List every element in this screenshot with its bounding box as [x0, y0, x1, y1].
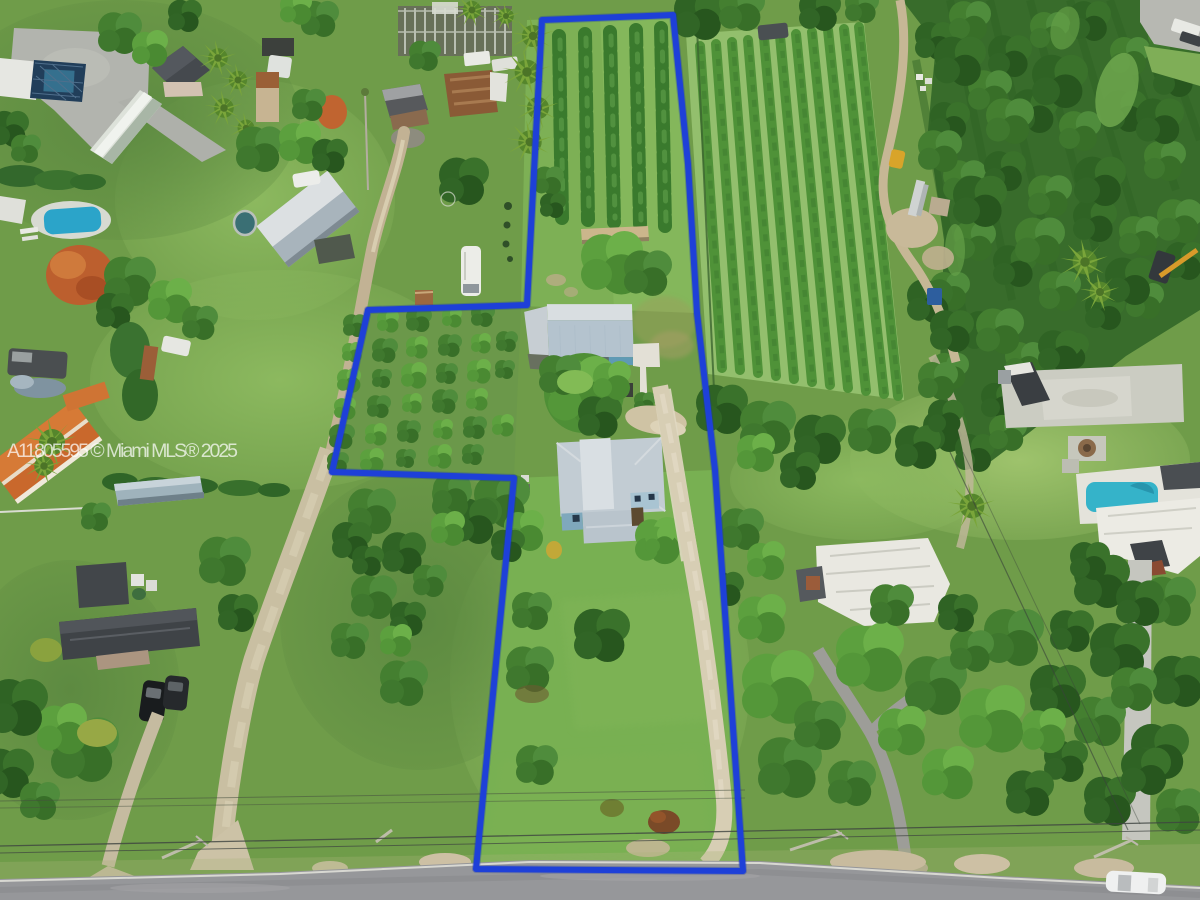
svg-text:A11805595 © Miami MLS® 2025: A11805595 © Miami MLS® 2025	[7, 440, 238, 462]
